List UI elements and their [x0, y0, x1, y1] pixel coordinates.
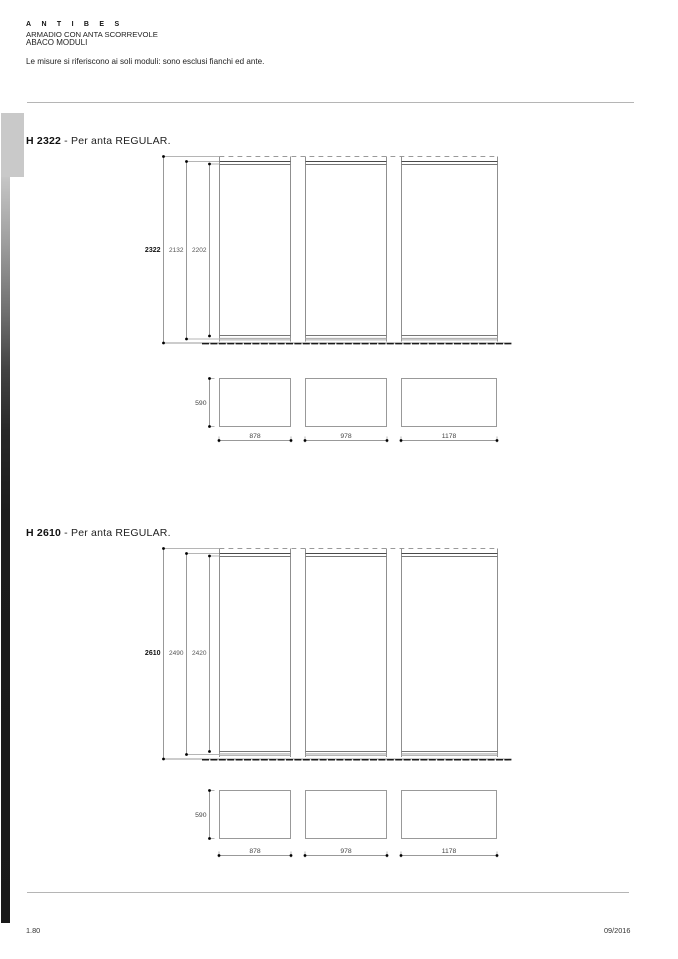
svg-text:2490: 2490 [169, 650, 184, 657]
svg-text:2202: 2202 [192, 247, 207, 254]
svg-text:978: 978 [340, 433, 352, 440]
svg-text:2610: 2610 [145, 650, 161, 657]
svg-text:878: 878 [249, 848, 261, 855]
svg-text:2420: 2420 [192, 650, 207, 657]
svg-text:878: 878 [249, 433, 261, 440]
svg-text:2132: 2132 [169, 247, 184, 254]
svg-text:2322: 2322 [145, 247, 161, 254]
svg-text:590: 590 [195, 812, 207, 819]
svg-text:590: 590 [195, 400, 207, 407]
svg-text:978: 978 [340, 848, 352, 855]
svg-text:1178: 1178 [442, 433, 457, 440]
svg-text:1178: 1178 [442, 848, 457, 855]
